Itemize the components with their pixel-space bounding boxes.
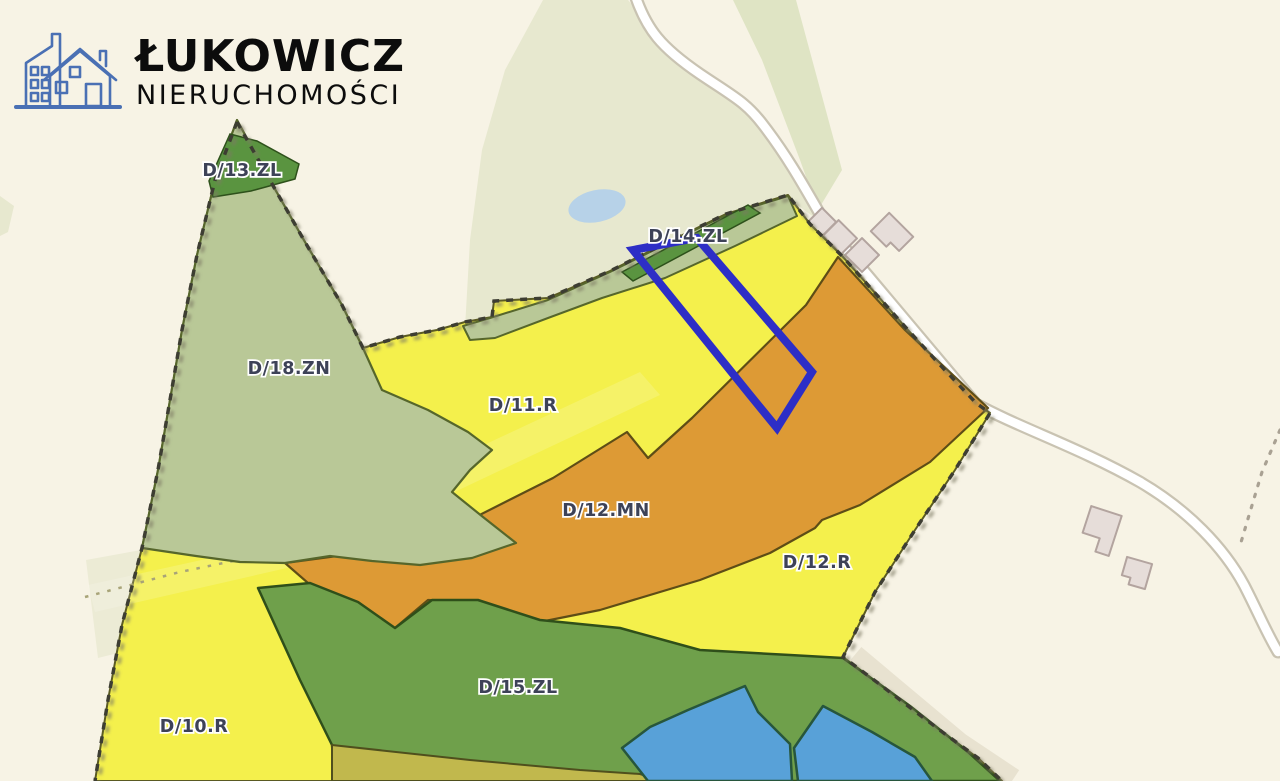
map-viewport[interactable]: D/13.ZL D/14.ZL D/18.ZN D/11.R D/12.MN D…: [0, 0, 1280, 781]
logo: ŁUKOWICZ NIERUCHOMOŚCI: [12, 20, 405, 112]
logo-title: ŁUKOWICZ: [136, 34, 405, 80]
zone-label-d12-r: D/12.R: [783, 553, 851, 573]
buildings-house-icon: [12, 20, 124, 112]
zone-label-d14-zl: D/14.ZL: [648, 227, 727, 247]
zone-label-d15-zl: D/15.ZL: [478, 678, 557, 698]
zone-label-d11-r: D/11.R: [489, 396, 557, 416]
zone-label-d18-zn: D/18.ZN: [248, 359, 331, 379]
zone-label-d13-zl: D/13.ZL: [202, 161, 281, 181]
logo-subtitle: NIERUCHOMOŚCI: [136, 80, 405, 112]
zone-label-d10-r: D/10.R: [160, 717, 228, 737]
zone-label-d12-mn: D/12.MN: [562, 501, 649, 521]
zoning-map[interactable]: D/13.ZL D/14.ZL D/18.ZN D/11.R D/12.MN D…: [0, 0, 1280, 781]
